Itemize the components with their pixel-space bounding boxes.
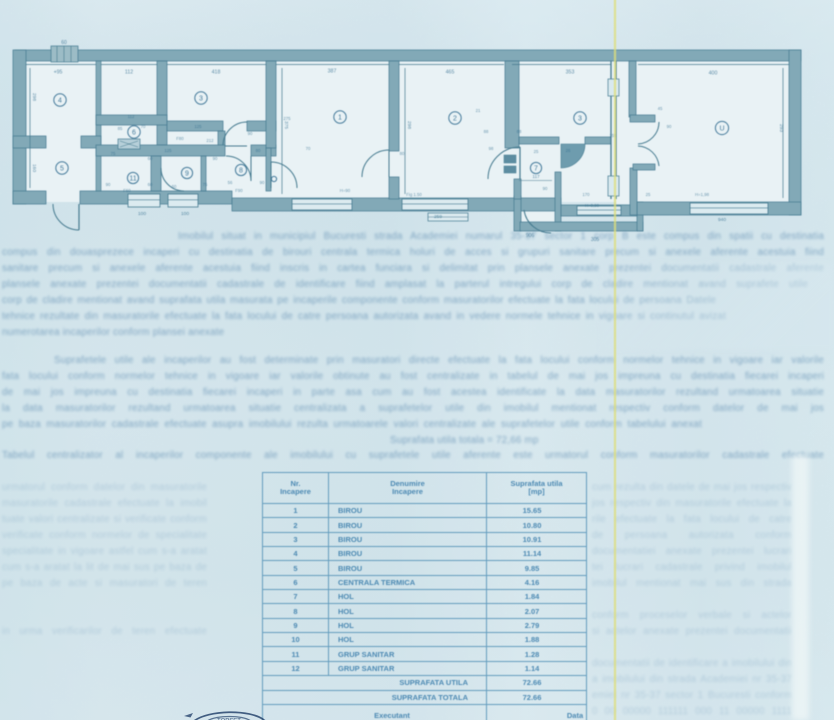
svg-text:3: 3 [578, 115, 582, 122]
svg-text:25: 25 [646, 192, 651, 197]
svg-text:275: 275 [283, 116, 291, 121]
svg-text:2: 2 [453, 115, 457, 122]
svg-text:375: 375 [283, 121, 289, 129]
svg-text:75: 75 [203, 182, 208, 187]
svg-text:7: 7 [534, 165, 538, 172]
svg-text:100: 100 [181, 211, 189, 217]
svg-text:H=0,90: H=0,90 [585, 203, 600, 208]
svg-text:U: U [719, 125, 724, 132]
svg-text:75: 75 [111, 151, 116, 156]
svg-text:F90: F90 [235, 188, 243, 193]
svg-text:100: 100 [138, 211, 146, 217]
svg-text:6: 6 [132, 129, 136, 136]
svg-text:90: 90 [260, 180, 265, 185]
svg-text:56: 56 [228, 180, 233, 185]
svg-text:465: 465 [446, 70, 455, 76]
svg-text:H=1,98: H=1,98 [695, 192, 710, 197]
svg-text:60: 60 [148, 182, 153, 187]
svg-text:293: 293 [778, 124, 784, 132]
svg-text:298: 298 [31, 93, 37, 101]
svg-text:940: 940 [718, 217, 726, 223]
svg-text:60: 60 [148, 156, 153, 161]
svg-text:4: 4 [58, 97, 62, 104]
svg-text:F80: F80 [176, 136, 184, 141]
svg-text:45: 45 [658, 106, 663, 111]
svg-text:90: 90 [106, 182, 111, 187]
svg-text:8: 8 [239, 167, 243, 174]
svg-text:21: 21 [476, 108, 481, 113]
svg-text:80: 80 [256, 148, 261, 153]
svg-text:70: 70 [306, 146, 311, 151]
svg-text:85: 85 [118, 126, 123, 131]
svg-text:Fig 1.50: Fig 1.50 [406, 192, 422, 197]
svg-text:170: 170 [582, 192, 590, 197]
svg-text:387: 387 [328, 69, 337, 75]
svg-text:88: 88 [484, 129, 489, 134]
svg-text:125: 125 [164, 148, 172, 153]
svg-text:90: 90 [543, 186, 548, 191]
svg-text:298: 298 [406, 121, 412, 129]
svg-text:F60: F60 [123, 188, 131, 193]
svg-text:259: 259 [434, 214, 442, 220]
svg-text:112: 112 [128, 114, 135, 119]
svg-text:+95: +95 [54, 70, 63, 76]
svg-text:90: 90 [213, 156, 218, 161]
svg-text:125: 125 [194, 124, 202, 129]
svg-text:60: 60 [61, 40, 67, 46]
svg-text:9: 9 [185, 170, 189, 177]
svg-text:400: 400 [709, 71, 718, 77]
svg-text:1: 1 [338, 114, 342, 121]
svg-text:117: 117 [532, 174, 540, 179]
svg-text:88: 88 [517, 129, 522, 134]
svg-text:5: 5 [60, 165, 64, 172]
svg-text:60: 60 [172, 184, 177, 189]
svg-text:26: 26 [566, 148, 571, 153]
svg-text:418: 418 [212, 70, 221, 76]
svg-text:353: 353 [566, 70, 575, 76]
svg-text:11: 11 [129, 175, 136, 182]
svg-text:70: 70 [141, 124, 146, 129]
svg-text:212: 212 [206, 138, 214, 143]
svg-text:H=90: H=90 [340, 188, 351, 193]
svg-text:112: 112 [125, 70, 133, 76]
svg-text:25: 25 [534, 149, 539, 154]
svg-text:160: 160 [31, 164, 37, 172]
svg-text:98: 98 [489, 146, 494, 151]
svg-text:3: 3 [199, 95, 203, 102]
svg-text:80: 80 [400, 151, 405, 156]
svg-text:90: 90 [667, 124, 672, 129]
svg-text:90: 90 [248, 131, 253, 136]
